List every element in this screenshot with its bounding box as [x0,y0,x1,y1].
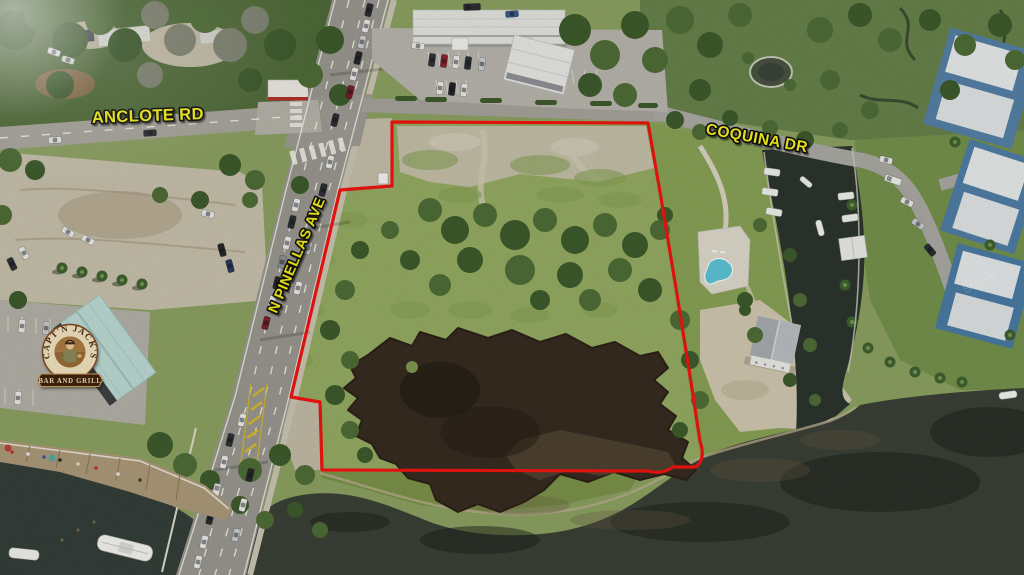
aerial-scene: ANCLOTE RD N PINELLAS AVE COQUINA DR CAP… [0,0,1024,575]
photo-grain [0,0,1024,575]
aerial-photo-stage: ANCLOTE RD N PINELLAS AVE COQUINA DR CAP… [0,0,1024,575]
